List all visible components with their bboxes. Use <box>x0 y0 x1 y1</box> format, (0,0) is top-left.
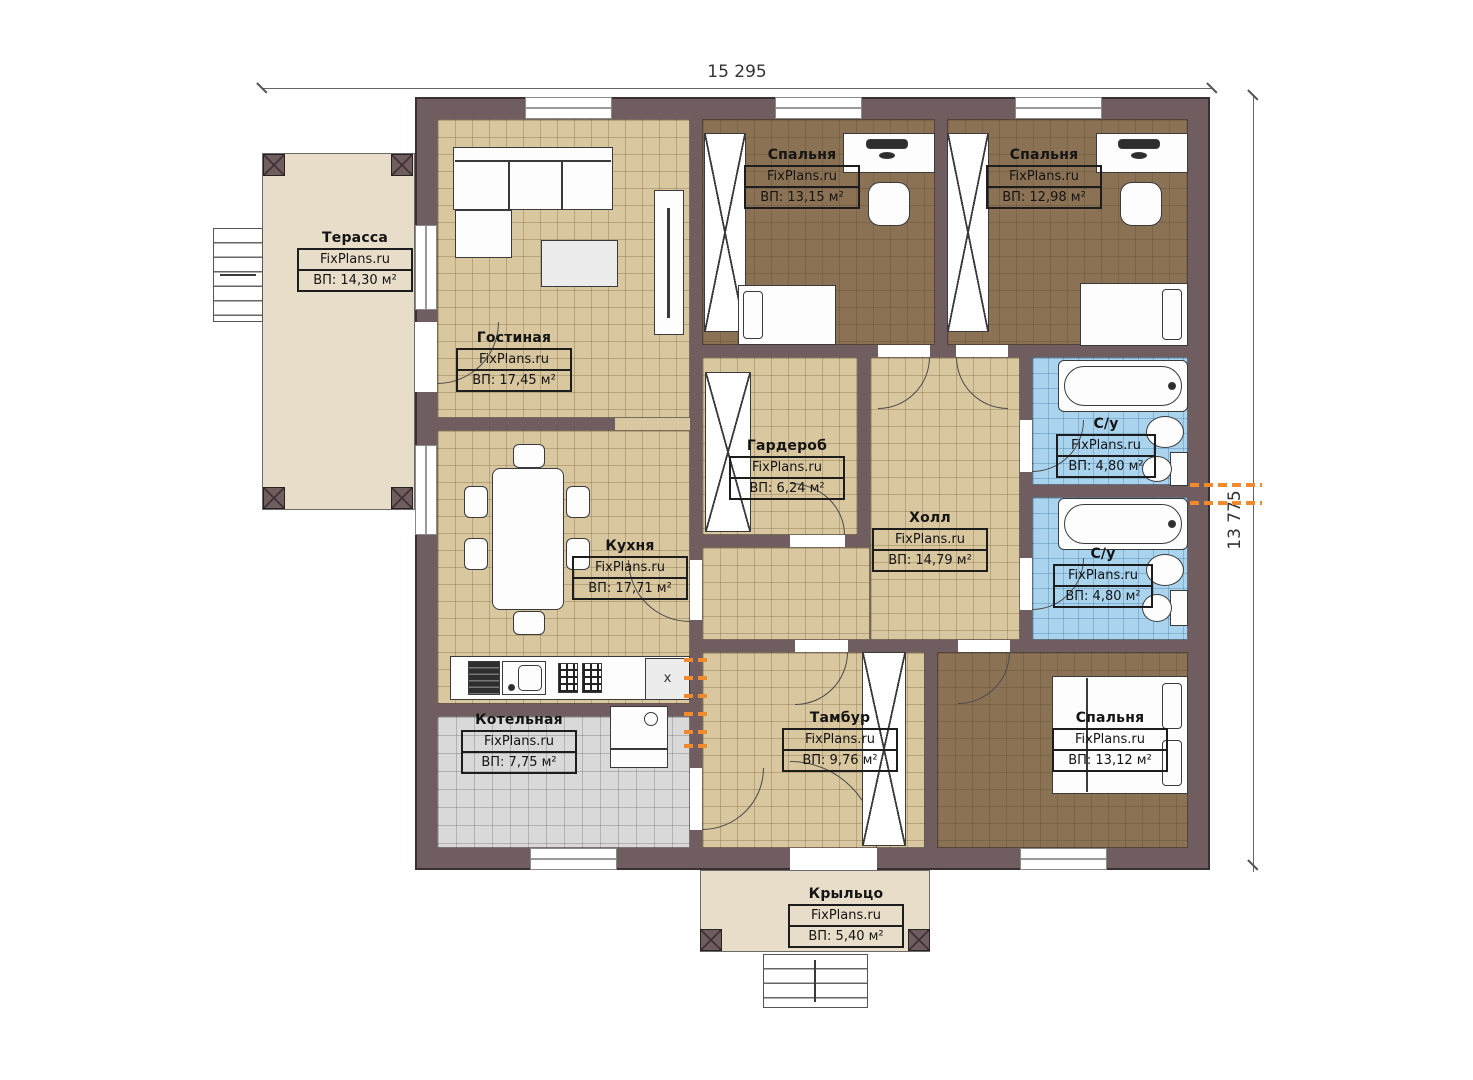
terrace-column <box>391 154 413 176</box>
watermark: FixPlans.ru <box>790 906 902 927</box>
window <box>525 97 612 119</box>
radiator-mark <box>1190 501 1262 505</box>
dining-table <box>492 468 564 610</box>
room-name: Спальня <box>744 147 860 163</box>
watermark: FixPlans.ru <box>784 730 896 751</box>
sofa-seam <box>561 160 563 210</box>
window <box>1015 97 1102 119</box>
room-name: Спальня <box>1052 710 1168 726</box>
window <box>775 97 862 119</box>
dimension-height: 13 775 <box>1225 475 1245 565</box>
dimension-width: 15 295 <box>662 62 812 82</box>
door-opening-boiler <box>690 768 702 830</box>
watermark: FixPlans.ru <box>731 458 843 479</box>
room-area: ВП: 14,79 м² <box>874 551 986 570</box>
room-label-vestibule: Тамбур FixPlans.ru ВП: 9,76 м² <box>782 710 898 772</box>
terrace-deck <box>262 153 415 510</box>
room-area: ВП: 4,80 м² <box>1058 457 1154 476</box>
room-label-hall: Холл FixPlans.ru ВП: 14,79 м² <box>872 510 988 572</box>
bed-pillow <box>1162 289 1182 340</box>
toilet-tank <box>1170 590 1188 626</box>
room-area: ВП: 13,12 м² <box>1054 751 1166 770</box>
room-area: ВП: 17,45 м² <box>458 371 570 390</box>
sofa-back-line <box>455 160 611 162</box>
bed-pillow <box>743 291 763 339</box>
terrace-column <box>391 487 413 509</box>
sofa-chaise <box>455 210 512 258</box>
room-name: Терасса <box>297 230 413 246</box>
radiator-mark <box>684 658 710 662</box>
room-name: Спальня <box>986 147 1102 163</box>
bathtub-drain <box>1168 520 1176 528</box>
watermark: FixPlans.ru <box>1054 730 1166 751</box>
cabinet-mark: x <box>664 671 672 686</box>
door-opening-bedroom-2 <box>956 345 1008 357</box>
office-chair <box>868 182 910 226</box>
porch-column <box>700 929 722 951</box>
passage-living-kitchen <box>615 418 690 430</box>
room-name: Тамбур <box>782 710 898 726</box>
room-label-bedroom-1: Спальня FixPlans.ru ВП: 13,15 м² <box>744 147 860 209</box>
watermark: FixPlans.ru <box>299 250 411 271</box>
room-label-terrace: Терасса FixPlans.ru ВП: 14,30 м² <box>297 230 413 292</box>
room-area: ВП: 13,15 м² <box>746 188 858 207</box>
door-opening-bedroom-3 <box>958 640 1010 652</box>
stove-burners <box>582 663 602 693</box>
monitor-stand <box>1131 152 1147 159</box>
watermark: FixPlans.ru <box>1055 566 1151 587</box>
sink-bowl <box>518 665 542 691</box>
radiator-mark <box>684 744 710 748</box>
dining-chair <box>464 538 488 570</box>
dining-chair <box>513 444 545 468</box>
window <box>1020 848 1107 870</box>
radiator-mark <box>684 712 710 716</box>
bathtub-basin <box>1064 366 1182 406</box>
room-name: Кухня <box>572 538 688 554</box>
door-opening-bathroom-2 <box>1020 558 1032 610</box>
terrace-column <box>263 487 285 509</box>
room-label-bathroom-1: С/у FixPlans.ru ВП: 4,80 м² <box>1056 416 1156 478</box>
room-area: ВП: 4,80 м² <box>1055 587 1151 606</box>
room-area: ВП: 7,75 м² <box>463 753 575 772</box>
room-name: Крыльцо <box>788 886 904 902</box>
steps-direction-arrow <box>814 960 816 1002</box>
bathtub-basin <box>1064 504 1182 544</box>
radiator-mark <box>684 676 710 680</box>
watermark: FixPlans.ru <box>1058 436 1154 457</box>
room-label-bedroom-3: Спальня FixPlans.ru ВП: 13,12 м² <box>1052 710 1168 772</box>
boiler-dial <box>644 712 658 726</box>
dining-chair <box>513 611 545 635</box>
room-name: Котельная <box>461 712 577 728</box>
sofa <box>453 147 613 210</box>
dimension-line-top <box>262 88 1212 89</box>
door-opening-bedroom-1 <box>878 345 930 357</box>
door-opening-kitchen-hall <box>690 560 702 620</box>
radiator-mark <box>684 694 710 698</box>
stove-burners <box>558 663 578 693</box>
watermark: FixPlans.ru <box>463 732 575 753</box>
tv-screen <box>667 208 670 318</box>
room-label-boiler: Котельная FixPlans.ru ВП: 7,75 м² <box>461 712 577 774</box>
coffee-table <box>541 240 618 287</box>
dining-chair <box>464 486 488 518</box>
toilet-tank <box>1170 452 1188 486</box>
sink-faucet <box>508 684 515 691</box>
bathtub-drain <box>1168 382 1176 390</box>
office-chair <box>1120 182 1162 226</box>
room-area: ВП: 12,98 м² <box>988 188 1100 207</box>
boiler-unit <box>610 706 668 768</box>
window <box>530 848 617 870</box>
door-opening-vestibule <box>795 640 848 652</box>
room-name: С/у <box>1056 416 1156 432</box>
room-area: ВП: 5,40 м² <box>790 927 902 946</box>
dining-chair <box>566 486 590 518</box>
radiator-mark <box>1190 483 1262 487</box>
room-label-wardrobe: Гардероб FixPlans.ru ВП: 6,24 м² <box>729 438 845 500</box>
boiler-panel-line <box>611 748 667 750</box>
room-name: Гардероб <box>729 438 845 454</box>
sofa-seam <box>508 160 510 210</box>
room-label-bedroom-2: Спальня FixPlans.ru ВП: 12,98 м² <box>986 147 1102 209</box>
door-opening-terrace <box>415 322 437 392</box>
radiator-mark <box>684 730 710 734</box>
window <box>415 225 437 310</box>
room-name: Гостиная <box>456 330 572 346</box>
room-area: ВП: 6,24 м² <box>731 479 843 498</box>
porch-column <box>908 929 930 951</box>
door-opening-wardrobe <box>790 535 845 547</box>
window <box>415 445 437 535</box>
room-name: Холл <box>872 510 988 526</box>
room-name: С/у <box>1053 546 1153 562</box>
stairs-direction-arrow <box>220 274 256 276</box>
room-area: ВП: 14,30 м² <box>299 271 411 290</box>
room-label-porch: Крыльцо FixPlans.ru ВП: 5,40 м² <box>788 886 904 948</box>
wardrobe-cabinet <box>947 133 989 332</box>
door-opening-entrance <box>790 848 877 870</box>
room-floor-hall-lower <box>702 547 870 640</box>
watermark: FixPlans.ru <box>988 167 1100 188</box>
desk-monitor <box>866 139 908 149</box>
watermark: FixPlans.ru <box>458 350 570 371</box>
terrace-column <box>263 154 285 176</box>
room-label-living: Гостиная FixPlans.ru ВП: 17,45 м² <box>456 330 572 392</box>
monitor-stand <box>879 152 895 159</box>
room-label-kitchen: Кухня FixPlans.ru ВП: 17,71 м² <box>572 538 688 600</box>
door-opening-bathroom-1 <box>1020 420 1032 472</box>
room-area: ВП: 9,76 м² <box>784 751 896 770</box>
watermark: FixPlans.ru <box>874 530 986 551</box>
desk-monitor <box>1118 139 1160 149</box>
watermark: FixPlans.ru <box>746 167 858 188</box>
dishwasher <box>468 661 500 695</box>
room-label-bathroom-2: С/у FixPlans.ru ВП: 4,80 м² <box>1053 546 1153 608</box>
room-area: ВП: 17,71 м² <box>574 579 686 598</box>
watermark: FixPlans.ru <box>574 558 686 579</box>
